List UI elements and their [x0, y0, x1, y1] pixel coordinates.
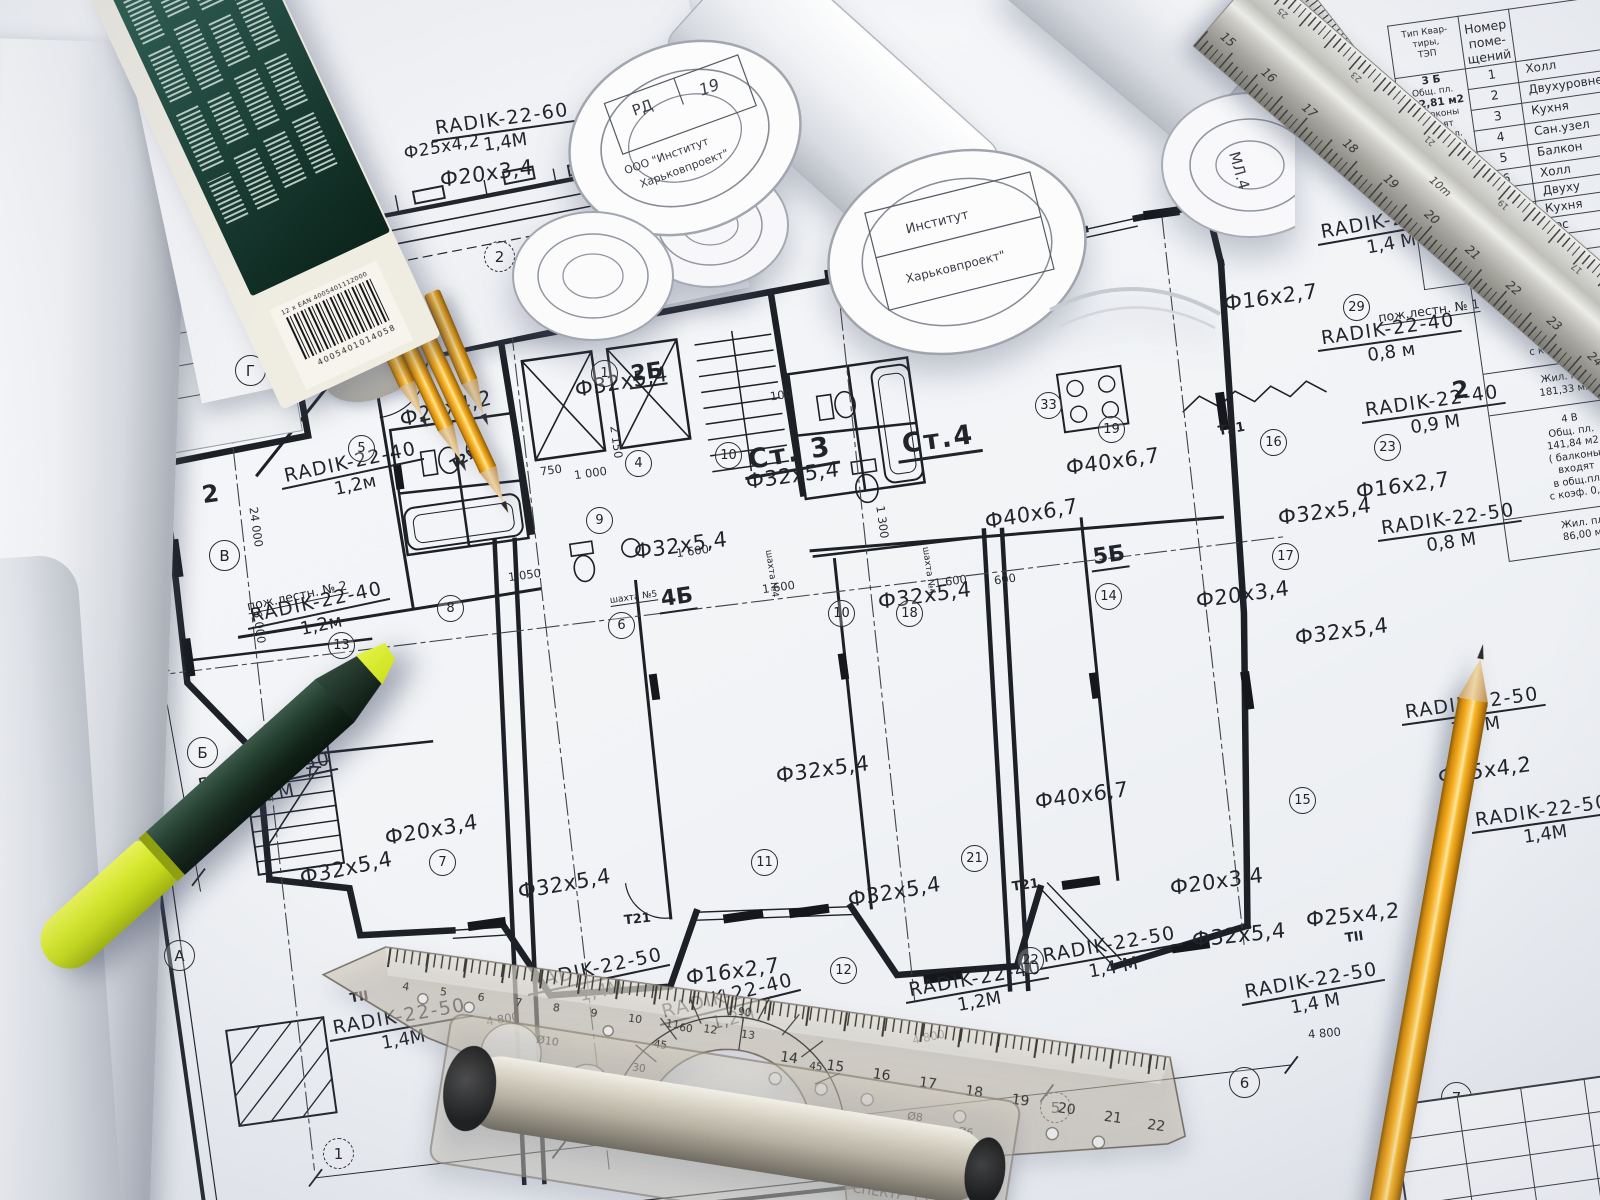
- ref-bubble: 18: [896, 600, 923, 627]
- zone-label: 5Б: [1088, 540, 1129, 572]
- svg-text:90: 90: [737, 1006, 752, 1020]
- grid-bubble: А: [164, 940, 195, 971]
- grid-bubble: Б: [187, 737, 218, 768]
- ref-bubble: 10: [828, 600, 855, 627]
- svg-text:22: 22: [1146, 1117, 1166, 1135]
- ref-bubble: 4: [625, 450, 652, 477]
- dim-label: 4 800: [1307, 1025, 1341, 1042]
- svg-text:10: 10: [627, 1012, 643, 1027]
- svg-text:13: 13: [740, 1027, 756, 1042]
- t-mark: ТII: [1344, 929, 1364, 946]
- ref-bubble: 5: [348, 435, 375, 462]
- svg-text:12: 12: [703, 1022, 719, 1037]
- grid-bubble: В: [209, 540, 240, 571]
- ref-bubble: 29: [1343, 294, 1370, 321]
- svg-text:60: 60: [678, 1022, 693, 1036]
- grid-bubble: 6: [1229, 1067, 1260, 1098]
- svg-text:20: 20: [1057, 1100, 1077, 1118]
- ref-bubble: 9: [586, 507, 613, 534]
- ref-bubble: 21: [961, 845, 988, 872]
- ref-bubble: 8: [437, 595, 464, 622]
- col-header-num: Номерпоме- щений: [1458, 9, 1516, 69]
- ref-bubble: 14: [1095, 583, 1122, 610]
- t-mark: Т21: [623, 911, 651, 929]
- ref-bubble: 6: [608, 612, 635, 639]
- pencil-lead-tip: [1476, 643, 1486, 659]
- svg-text:21: 21: [1103, 1109, 1123, 1127]
- rolled-blueprints: МЛ.4 РД 19 ООО "Институт Харьковпроект": [505, 0, 1295, 410]
- ref-bubble: 12: [830, 957, 857, 984]
- blueprint-photo: Примечание противопожарный Ф25х4,2 Ф32х5…: [0, 0, 1600, 1200]
- ref-bubble: 15: [1289, 787, 1316, 814]
- ref-bubble: 7: [429, 849, 456, 876]
- ref-bubble: 22: [1017, 947, 1044, 974]
- ref-bubble: 10: [715, 442, 742, 469]
- ref-bubble: 11: [751, 849, 778, 876]
- ref-bubble: 16: [1260, 429, 1287, 456]
- ruler-unit: 10m: [1427, 174, 1454, 200]
- zone-label: 4Б: [656, 582, 697, 614]
- ref-bubble: 23: [1374, 434, 1401, 461]
- ref-bubble: 19: [1098, 416, 1125, 443]
- ref-bubble: 17: [1272, 543, 1299, 570]
